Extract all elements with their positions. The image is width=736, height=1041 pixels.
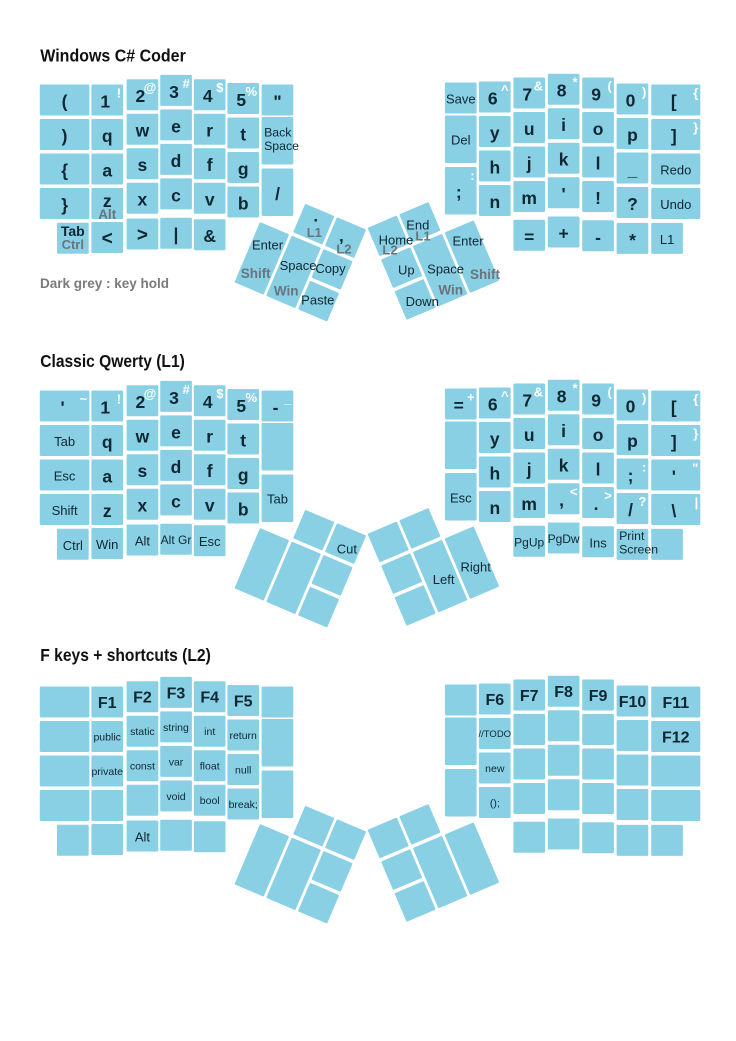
svg-text:Left: Left [433, 572, 455, 587]
svg-text:private: private [91, 766, 123, 778]
svg-text:();: (); [490, 798, 500, 810]
svg-text:F10: F10 [619, 694, 647, 711]
svg-text:L2: L2 [382, 243, 397, 258]
svg-text:Alt: Alt [135, 534, 151, 549]
svg-text:9: 9 [591, 85, 601, 105]
svg-text:^: ^ [501, 83, 509, 98]
svg-text:/: / [275, 184, 280, 204]
svg-text:Tab: Tab [267, 492, 288, 507]
svg-text:Undo: Undo [660, 197, 691, 212]
svg-text:v: v [205, 496, 215, 516]
svg-text:Space: Space [427, 261, 464, 276]
svg-text:!: ! [595, 188, 601, 208]
svg-text:;: ; [628, 466, 634, 486]
svg-text:0: 0 [626, 91, 636, 111]
svg-text:Windows C# Coder: Windows C# Coder [40, 45, 186, 65]
svg-text:=: = [454, 396, 464, 416]
svg-text:PgDw: PgDw [548, 532, 580, 546]
svg-text:*: * [629, 230, 636, 250]
svg-text:u: u [524, 425, 535, 445]
svg-text:{: { [693, 392, 698, 407]
svg-text:q: q [102, 126, 113, 146]
svg-text:Back: Back [264, 125, 292, 139]
svg-text:Ctrl: Ctrl [63, 538, 83, 553]
svg-text:': ' [672, 467, 676, 487]
svg-text:1: 1 [100, 92, 110, 112]
svg-text:#: # [183, 382, 191, 397]
svg-text:bool: bool [200, 795, 220, 807]
svg-text:Shift: Shift [241, 266, 271, 281]
svg-text:3: 3 [169, 82, 179, 102]
svg-text:m: m [521, 494, 537, 514]
svg-text:F7: F7 [520, 688, 539, 705]
svg-text:F2: F2 [133, 690, 152, 707]
svg-text:%: % [246, 84, 258, 99]
svg-text:Up: Up [398, 262, 415, 277]
svg-text:|: | [695, 495, 699, 510]
svg-text:y: y [490, 429, 500, 449]
svg-text:(: ( [62, 92, 68, 112]
svg-text:a: a [102, 467, 112, 487]
svg-text:_: _ [627, 160, 638, 180]
svg-text:new: new [485, 763, 505, 775]
svg-text:#: # [183, 76, 191, 91]
svg-text:{: { [693, 86, 698, 101]
svg-text:Cut: Cut [337, 541, 358, 556]
svg-text:z: z [103, 501, 112, 521]
svg-text:Shift: Shift [470, 267, 500, 282]
svg-text:Del: Del [451, 133, 471, 148]
svg-text:F1: F1 [98, 695, 117, 712]
svg-text:a: a [102, 161, 112, 181]
svg-text:Alt Gr: Alt Gr [161, 533, 192, 547]
svg-text:null: null [235, 765, 251, 777]
svg-text:+: + [558, 224, 568, 244]
svg-text:const: const [130, 761, 155, 773]
svg-text:|: | [174, 225, 179, 245]
svg-text:Win: Win [274, 284, 299, 299]
svg-text:': ' [61, 398, 65, 418]
svg-text:.: . [313, 207, 318, 226]
svg-text:F12: F12 [662, 730, 690, 747]
svg-text:]: ] [671, 432, 677, 452]
svg-text:}: } [61, 195, 68, 215]
svg-text:d: d [171, 457, 182, 477]
svg-text:}: } [693, 426, 698, 441]
svg-text:Classic Qwerty (L1): Classic Qwerty (L1) [40, 351, 185, 371]
svg-text:e: e [171, 116, 181, 136]
svg-text:m: m [521, 188, 537, 208]
svg-text:Save: Save [446, 92, 476, 107]
svg-text:y: y [490, 123, 500, 143]
svg-text:~: ~ [80, 392, 88, 407]
svg-text:Ins: Ins [589, 535, 607, 550]
svg-text:{: { [61, 161, 68, 181]
svg-text:F4: F4 [200, 690, 219, 707]
svg-text:[: [ [671, 92, 677, 112]
svg-text:Alt: Alt [135, 830, 151, 845]
svg-text:?: ? [627, 194, 638, 214]
svg-text:s: s [138, 461, 148, 481]
svg-text:q: q [102, 432, 113, 452]
svg-text:v: v [205, 190, 215, 210]
svg-text:L1: L1 [660, 232, 674, 247]
svg-text:h: h [489, 464, 500, 484]
svg-text:o: o [593, 425, 604, 445]
svg-text:f: f [207, 155, 213, 175]
svg-text:<: < [570, 484, 578, 499]
svg-text:PgUp: PgUp [514, 535, 544, 549]
svg-text:): ) [62, 126, 68, 146]
svg-text:>: > [604, 488, 612, 503]
svg-text:>: > [137, 225, 148, 246]
svg-text:;: ; [456, 182, 462, 202]
svg-text:4: 4 [203, 86, 213, 106]
svg-text:9: 9 [591, 391, 601, 411]
svg-text:L1: L1 [307, 225, 322, 240]
svg-text:f: f [207, 461, 213, 481]
svg-text:e: e [171, 422, 181, 442]
svg-text:$: $ [216, 386, 224, 401]
svg-text:Enter: Enter [252, 238, 284, 253]
svg-text:!: ! [117, 392, 121, 407]
svg-text:var: var [169, 756, 184, 768]
svg-text:void: void [166, 791, 185, 803]
svg-text:/: / [628, 500, 633, 520]
svg-text:break;: break; [229, 799, 258, 811]
svg-text:b: b [238, 500, 249, 520]
svg-text:t: t [240, 125, 246, 145]
svg-text:i: i [561, 115, 566, 135]
svg-text:int: int [204, 726, 215, 738]
svg-text:n: n [489, 192, 500, 212]
svg-text:return: return [229, 730, 257, 742]
svg-text:u: u [524, 119, 535, 139]
svg-text:x: x [138, 496, 148, 516]
svg-text:Print: Print [619, 529, 645, 543]
svg-text:<: < [102, 229, 113, 250]
svg-text:string: string [163, 722, 189, 734]
svg-text:.: . [594, 494, 599, 514]
svg-text:r: r [206, 121, 213, 141]
svg-text:Esc: Esc [54, 469, 76, 484]
svg-text:+: + [467, 390, 475, 405]
svg-text::: : [470, 168, 474, 183]
svg-text:7: 7 [522, 85, 532, 105]
svg-text:,: , [559, 490, 564, 510]
svg-text:]: ] [671, 126, 677, 146]
svg-text:b: b [238, 194, 249, 214]
svg-text:3: 3 [169, 388, 179, 408]
svg-text:c: c [171, 185, 181, 205]
svg-text:-: - [595, 227, 601, 247]
svg-text:L1: L1 [415, 229, 430, 244]
svg-text:l: l [596, 154, 601, 174]
svg-text:Space: Space [280, 258, 317, 273]
svg-text:Esc: Esc [450, 490, 472, 505]
svg-text:n: n [489, 498, 500, 518]
svg-text:r: r [206, 427, 213, 447]
svg-text:=: = [524, 227, 534, 247]
svg-text:(: ( [608, 385, 613, 400]
svg-text:?: ? [638, 494, 646, 509]
svg-text:Down: Down [406, 294, 439, 309]
svg-text:Tab: Tab [54, 434, 75, 449]
svg-text:g: g [238, 465, 249, 485]
svg-text:Alt: Alt [98, 207, 117, 222]
svg-text:F11: F11 [662, 695, 689, 712]
svg-text:4: 4 [203, 392, 213, 412]
svg-text:&: & [534, 385, 543, 400]
svg-text:): ) [642, 85, 646, 100]
svg-text:\: \ [671, 501, 676, 521]
svg-text:Enter: Enter [452, 234, 484, 249]
svg-text:-: - [273, 398, 279, 418]
svg-text:o: o [593, 119, 604, 139]
svg-text:h: h [489, 158, 500, 178]
svg-text:8: 8 [557, 81, 567, 101]
svg-text:float: float [200, 761, 220, 773]
svg-text:j: j [526, 154, 532, 174]
svg-text:&: & [203, 226, 216, 246]
svg-text:}: } [693, 120, 698, 135]
svg-text:$: $ [216, 80, 224, 95]
svg-text:g: g [238, 159, 249, 179]
svg-text:j: j [526, 460, 532, 480]
svg-text:l: l [596, 460, 601, 480]
svg-text:!: ! [117, 86, 121, 101]
svg-text:6: 6 [488, 395, 498, 415]
svg-text:k: k [559, 150, 569, 170]
svg-text:p: p [627, 125, 638, 145]
svg-text:Screen: Screen [619, 543, 658, 557]
svg-text:w: w [135, 121, 150, 141]
svg-text:_: _ [283, 392, 292, 407]
svg-text:F8: F8 [554, 684, 573, 701]
svg-text:Dark grey : key hold: Dark grey : key hold [40, 276, 169, 291]
svg-text:w: w [135, 427, 150, 447]
svg-text:8: 8 [557, 387, 567, 407]
svg-text:Copy: Copy [315, 261, 346, 276]
svg-text:L2: L2 [336, 242, 351, 257]
svg-text:6: 6 [488, 89, 498, 109]
svg-text:F6: F6 [485, 692, 504, 709]
svg-text:Win: Win [96, 537, 118, 552]
svg-text:@: @ [144, 80, 157, 95]
svg-text:%: % [246, 390, 258, 405]
svg-text:[: [ [671, 398, 677, 418]
svg-text:Ctrl: Ctrl [62, 237, 84, 252]
svg-text:F9: F9 [589, 688, 608, 705]
svg-text:Win: Win [438, 283, 463, 298]
svg-text:t: t [240, 431, 246, 451]
svg-text:d: d [171, 151, 182, 171]
svg-text:F3: F3 [167, 685, 186, 702]
svg-text:": " [692, 461, 698, 476]
svg-text:@: @ [144, 386, 157, 401]
svg-text:Right: Right [461, 559, 492, 574]
svg-text:1: 1 [100, 398, 110, 418]
svg-text:x: x [138, 190, 148, 210]
svg-text:i: i [561, 421, 566, 441]
svg-text://TODO: //TODO [479, 729, 512, 740]
svg-text:Paste: Paste [301, 293, 334, 308]
svg-text:^: ^ [501, 389, 509, 404]
svg-text:7: 7 [522, 391, 532, 411]
svg-text:(: ( [608, 79, 613, 94]
svg-text:Shift: Shift [52, 503, 78, 518]
svg-text:": " [273, 92, 281, 112]
svg-text:': ' [562, 184, 566, 204]
svg-text:public: public [93, 732, 120, 744]
svg-text:static: static [130, 726, 155, 738]
svg-text:0: 0 [626, 397, 636, 417]
svg-text:F keys + shortcuts (L2): F keys + shortcuts (L2) [40, 645, 211, 665]
svg-text:&: & [534, 79, 543, 94]
svg-text:s: s [138, 155, 148, 175]
svg-text::: : [642, 460, 646, 475]
svg-text:Esc: Esc [199, 534, 221, 549]
svg-text:p: p [627, 431, 638, 451]
svg-text:c: c [171, 491, 181, 511]
svg-text:F5: F5 [234, 694, 253, 711]
svg-text:k: k [559, 456, 569, 476]
svg-text:Space: Space [264, 139, 299, 153]
svg-text:Redo: Redo [660, 163, 691, 178]
svg-text:): ) [642, 391, 646, 406]
